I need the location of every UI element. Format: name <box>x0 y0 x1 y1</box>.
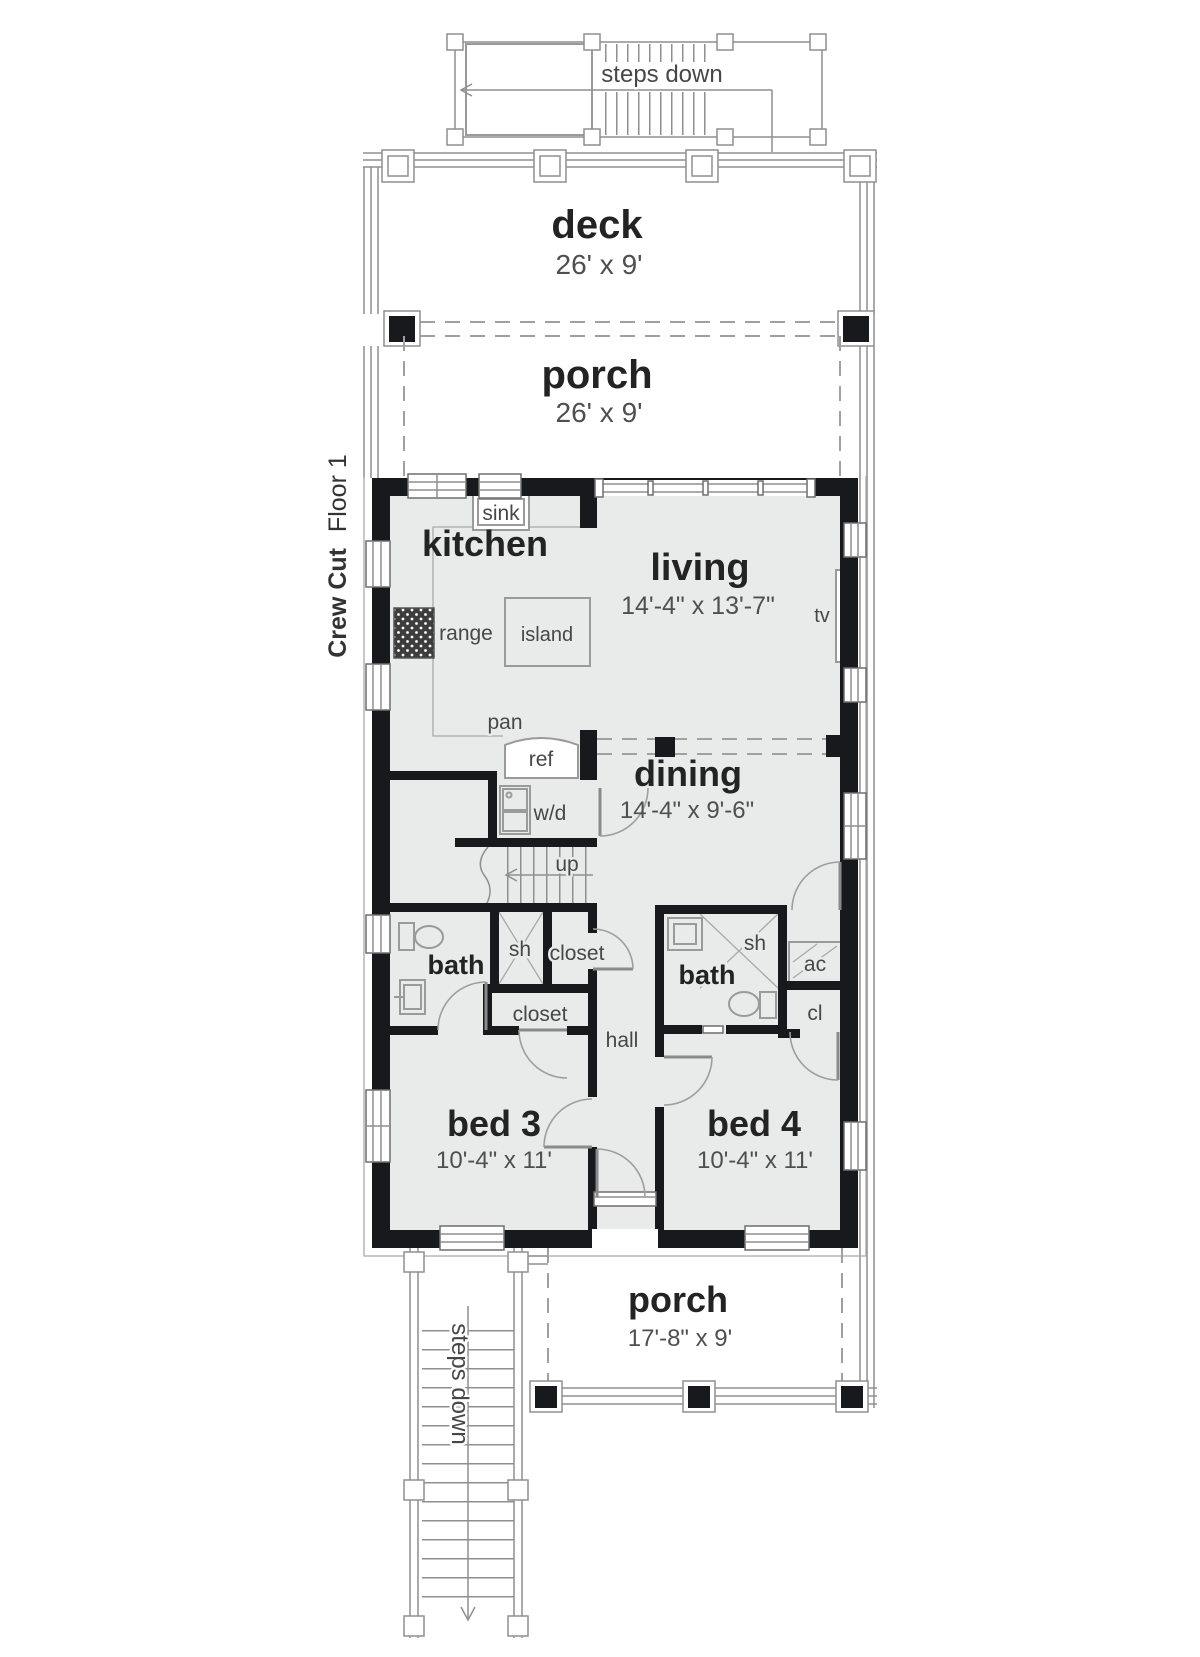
hall-label: hall <box>606 1029 639 1052</box>
wd-label: w/d <box>533 802 567 825</box>
bottom-stairs: steps down <box>404 1248 548 1638</box>
pan-label: pan <box>487 711 522 734</box>
porch-bottom: porch 17'-8" x 9' <box>530 1248 877 1412</box>
ref-label: ref <box>529 748 554 771</box>
closet-top-label: closet <box>550 942 605 965</box>
porch-top-label: porch <box>541 353 652 397</box>
bed3-dims: 10'-4" x 11' <box>436 1147 552 1174</box>
island-label: island <box>521 624 573 646</box>
porch-top: porch 26' x 9' <box>404 336 840 476</box>
tv-label: tv <box>814 605 830 627</box>
top-stairs: steps down <box>447 34 826 152</box>
deck-label: deck <box>551 203 643 247</box>
stair-treads-right-lower <box>597 92 715 135</box>
bath-right-label: bath <box>679 960 736 990</box>
bed4-dims: 10'-4" x 11' <box>697 1147 813 1174</box>
up-label: up <box>555 853 578 876</box>
floor-plan-drawing: steps down deck 26' x 9' porch 26' x 9' <box>0 0 1200 1657</box>
bed4-label: bed 4 <box>707 1103 801 1144</box>
bed3-label: bed 3 <box>447 1103 541 1144</box>
plan-title-bold: Crew Cut <box>324 547 352 657</box>
steps-down-top-label: steps down <box>601 61 722 88</box>
ac-label: ac <box>804 953 826 976</box>
bath-right-pocket-door <box>703 1026 723 1033</box>
dining-label: dining <box>634 753 742 794</box>
house: kitchen living 14'-4" x 13'-7" dining 14… <box>364 474 866 1256</box>
plan-title: Crew Cut Floor 1 <box>324 454 352 658</box>
sh-right-label: sh <box>744 932 766 955</box>
structural-post <box>389 316 415 342</box>
floor-plan-page: steps down deck 26' x 9' porch 26' x 9' <box>0 0 1200 1657</box>
range-burners <box>394 608 434 658</box>
living-label: living <box>650 547 749 589</box>
porch-post <box>841 1386 863 1408</box>
cl-label: cl <box>807 1002 822 1025</box>
stair-treads-right-upper <box>597 44 715 62</box>
porch-top-dims: 26' x 9' <box>556 397 643 428</box>
sink-label: sink <box>482 502 520 525</box>
deck-posts <box>382 150 876 182</box>
range-label: range <box>439 622 493 645</box>
porch-post <box>535 1386 557 1408</box>
dining-dims: 14'-4" x 9'-6" <box>620 797 754 824</box>
closet-bottom-label: closet <box>513 1003 568 1026</box>
bath-left-label: bath <box>428 950 485 980</box>
structural-post <box>843 316 869 342</box>
porch-post <box>688 1386 710 1408</box>
living-dims: 14'-4" x 13'-7" <box>621 592 775 620</box>
plan-title-regular: Floor 1 <box>324 454 352 532</box>
kitchen-label: kitchen <box>422 523 548 564</box>
wall-stub <box>826 735 842 757</box>
steps-down-bottom-label: steps down <box>446 1323 473 1444</box>
front-threshold <box>594 1192 656 1206</box>
sh-left-label: sh <box>509 938 531 961</box>
porch-bottom-dims: 17'-8" x 9' <box>628 1325 732 1352</box>
porch-bottom-label: porch <box>628 1279 728 1320</box>
deck-dims: 26' x 9' <box>556 249 643 280</box>
